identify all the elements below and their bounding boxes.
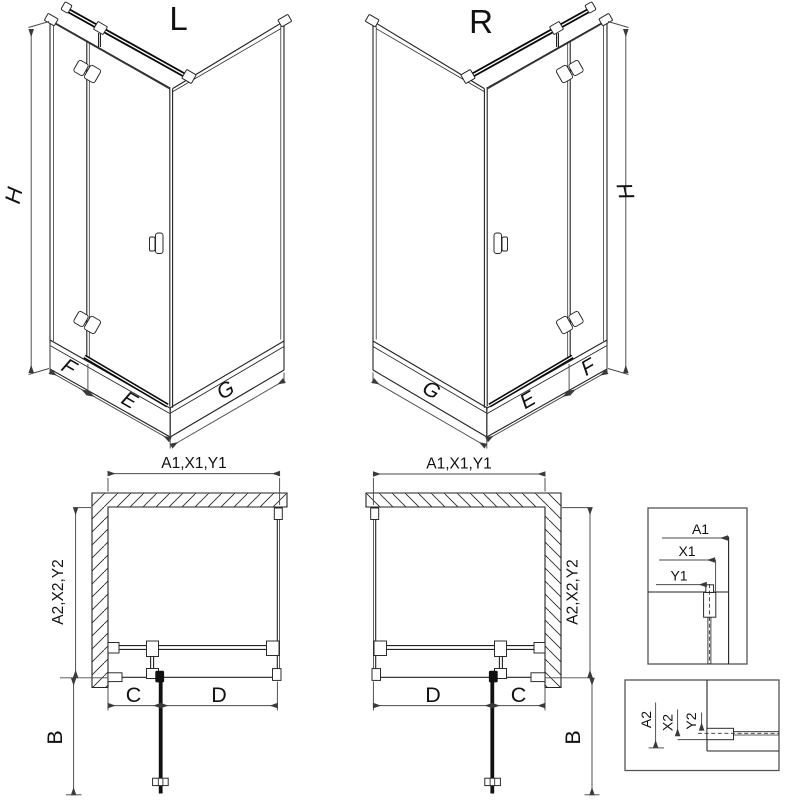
plan-left-d-label: D [211,683,227,707]
plan-left-c-label: C [126,683,142,707]
plan-right-dimensions [373,474,599,795]
unit-left-drawing [29,2,292,449]
unit-right-drawing [365,2,628,449]
detail-a1-label: A1 [692,521,709,537]
plan-left-top-dim-label: A1,X1,Y1 [161,455,227,472]
dim-label-f-left: F [57,354,81,381]
drawing-canvas: L R H H F E G F E G A1,X1,Y1 A2,X2,Y2 B … [0,0,800,800]
plan-left-b-label: B [43,730,67,744]
dim-label-e-left: E [117,387,141,414]
plan-right-side-dim-label: A2,X2,Y2 [565,559,582,625]
technical-drawing-sheet: L R H H F E G F E G A1,X1,Y1 A2,X2,Y2 B … [0,0,800,800]
dim-label-height-left: H [0,185,28,206]
plan-right-top-dim-label: A1,X1,Y1 [426,456,492,473]
plan-left: A1,X1,Y1 A2,X2,Y2 B C D [43,455,287,795]
plan-right-d-label: D [425,683,441,707]
unit-right-title: R [469,3,493,40]
detail-x2-label: X2 [660,714,676,731]
wall-profile-section [707,728,734,739]
plan-right: A1,X1,Y1 A2,X2,Y2 B D C [366,456,600,795]
dim-label-e-right: E [516,386,540,413]
detail-x1-label: X1 [678,543,695,559]
detail-box-width-dims: A1 X1 Y1 [648,508,747,664]
detail-box-depth-dims: A2 X2 Y2 [625,680,779,771]
plan-right-c-label: C [511,683,527,707]
detail-y2-label: Y2 [683,712,699,729]
dim-label-height-right: H [612,181,640,202]
unit-left-title: L [169,0,187,37]
plan-right-b-label: B [561,730,585,744]
dim-label-f-right: F [577,354,601,381]
plan-left-side-dim-label: A2,X2,Y2 [50,559,67,625]
detail-y1-label: Y1 [670,568,687,584]
detail-a2-label: A2 [638,711,654,728]
